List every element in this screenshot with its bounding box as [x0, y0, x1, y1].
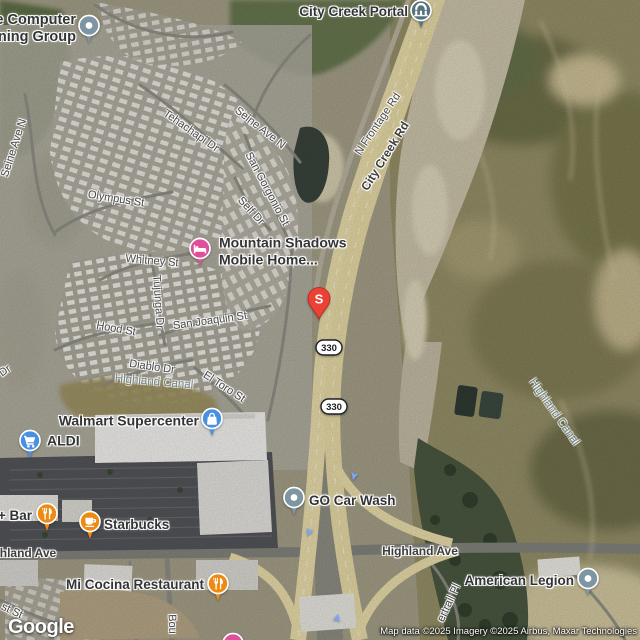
lodging-pin-icon[interactable]: [187, 237, 213, 269]
restaurant-pin-icon[interactable]: [205, 572, 231, 604]
street-label-ertrail-pl: ertrail Pl: [435, 582, 463, 624]
street-label-tujunga-dr: Tujunga Dr: [150, 275, 166, 330]
generic-poi-icon[interactable]: [575, 567, 601, 599]
poi-label-go-car-wash[interactable]: GO Car Wash: [309, 493, 396, 509]
google-logo[interactable]: Google: [8, 616, 74, 639]
street-label-highland-canal-right: Highland Canal: [527, 376, 582, 447]
street-label-self-dr: Self Dr: [235, 195, 267, 228]
direction-arrow-icon: [348, 470, 360, 482]
map-canvas[interactable]: Seine Ave NTehachapi DrSeine Ave NSan Go…: [0, 0, 640, 640]
street-label-tehachapi-dr: Tehachapi Dr: [161, 107, 221, 154]
street-label-seine-ave-n-left: Seine Ave N: [0, 117, 29, 178]
street-label-olympus-st: Olympus St: [87, 189, 145, 210]
street-label-el-toro-st: El Toro St: [201, 369, 247, 405]
poi-label-city-creek-portal[interactable]: City Creek Portal: [299, 4, 408, 20]
street-label-highland-ave-left: hland Ave: [0, 546, 56, 560]
street-label-highland-ave-right: Highland Ave: [382, 544, 458, 558]
route-shield-330: 330: [320, 398, 348, 415]
direction-arrow-icon: [303, 526, 315, 538]
route-shield-330: 330: [315, 339, 343, 356]
street-label-whitney-st: Whitney St: [125, 253, 179, 270]
street-label-san-joaquin-st: San Joaquin St: [172, 310, 248, 332]
svg-text:330: 330: [326, 402, 342, 413]
direction-arrow-icon: [331, 612, 343, 624]
red-marker-s[interactable]: S: [306, 286, 332, 322]
street-label-seine-ave-n-right: Seine Ave N: [233, 105, 288, 152]
lodging-pin-icon[interactable]: [220, 632, 246, 640]
shopping-cart-icon[interactable]: [17, 429, 43, 461]
poi-label-aldi[interactable]: ALDI: [47, 433, 80, 450]
generic-poi-icon[interactable]: [76, 14, 102, 46]
attraction-pin-icon[interactable]: [408, 0, 434, 31]
coffee-pin-icon[interactable]: [77, 510, 103, 542]
street-label-dr-cut: Dr: [0, 363, 13, 379]
poi-label-mountain-shadows[interactable]: Mountain ShadowsMobile Home...: [219, 234, 347, 267]
svg-text:S: S: [315, 292, 324, 307]
poi-label-computer-training-group[interactable]: le Computeraining Group: [0, 12, 76, 46]
poi-label-american-legion[interactable]: American Legion: [464, 573, 574, 589]
poi-label-starbucks[interactable]: Starbucks: [104, 517, 169, 533]
street-label-highland-canal-left: Highland Canal: [114, 373, 193, 392]
generic-poi-icon[interactable]: [281, 486, 307, 518]
poi-label-plus-bar[interactable]: + Bar: [0, 508, 32, 524]
poi-label-walmart-supercenter[interactable]: Walmart Supercenter: [59, 413, 199, 430]
attribution-text: Map data ©2025 Imagery ©2025 Airbus, Max…: [380, 626, 637, 637]
svg-text:330: 330: [321, 343, 337, 354]
poi-label-mi-cocina-restaurant[interactable]: Mi Cocina Restaurant: [66, 577, 204, 593]
street-label-boulder-ave: Bou: [166, 614, 179, 634]
street-label-hood-st: Hood St: [95, 320, 136, 339]
restaurant-pin-icon[interactable]: [34, 502, 60, 534]
shopping-bag-icon[interactable]: [199, 407, 225, 439]
